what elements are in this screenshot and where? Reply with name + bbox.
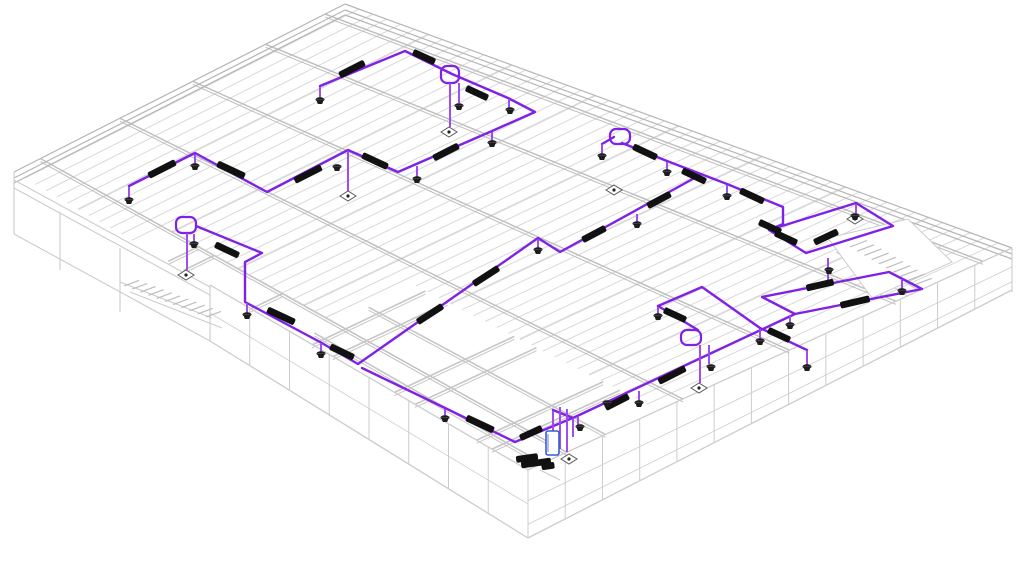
- stair-tread: [132, 284, 147, 290]
- roof-joist: [110, 50, 470, 228]
- fixture-base: [633, 224, 640, 228]
- conduit-fitting[interactable]: [329, 343, 355, 360]
- girder-beam: [120, 118, 683, 399]
- stair-tread: [915, 278, 932, 285]
- fixture-device[interactable]: [802, 364, 811, 371]
- stair-tread: [124, 280, 139, 286]
- fixture-device[interactable]: [454, 103, 463, 110]
- fixture-base: [125, 200, 132, 204]
- stair-tread: [149, 290, 164, 296]
- stair-tread: [206, 311, 221, 317]
- roof-joist-layer: [25, 9, 998, 404]
- roof-joist: [121, 55, 484, 234]
- roof-joist: [78, 35, 428, 210]
- conduit-fitting[interactable]: [416, 303, 445, 325]
- partition-wall: [394, 336, 514, 392]
- fixture-device[interactable]: [124, 197, 133, 204]
- roof-joist: [555, 202, 887, 357]
- fixture-device[interactable]: [412, 176, 421, 183]
- conduit-fitting[interactable]: [663, 307, 688, 323]
- plate-center: [612, 188, 615, 191]
- conduit-fitting[interactable]: [774, 230, 799, 246]
- girder-beam: [266, 47, 896, 304]
- structure-line: [14, 234, 210, 341]
- electrical-panel[interactable]: [546, 431, 559, 455]
- wall-band: [528, 282, 1012, 525]
- fixture-device[interactable]: [755, 338, 764, 345]
- fixture-base: [316, 100, 323, 104]
- fixture-device[interactable]: [533, 247, 542, 254]
- stair-tread: [165, 296, 180, 302]
- fixture-base: [803, 367, 810, 371]
- conduit-fitting[interactable]: [293, 164, 323, 184]
- fixture-layer: [124, 97, 906, 431]
- partition-wall: [394, 339, 514, 395]
- fixture-device[interactable]: [632, 221, 641, 228]
- fixture-device[interactable]: [575, 424, 584, 431]
- ceiling-plate[interactable]: [340, 191, 356, 201]
- fixture-device[interactable]: [785, 322, 794, 329]
- roof-joist: [531, 192, 859, 345]
- plate-center: [346, 194, 349, 197]
- fixture-device[interactable]: [597, 153, 606, 160]
- conduit-fitting[interactable]: [581, 225, 607, 243]
- fixture-device[interactable]: [190, 163, 199, 170]
- fixture-device[interactable]: [662, 169, 671, 176]
- plate-center: [567, 457, 570, 460]
- wall-top-edge: [528, 248, 1012, 470]
- conduit-gooseneck[interactable]: [681, 330, 701, 345]
- stair-tread: [190, 305, 205, 311]
- fixture-base: [506, 110, 513, 114]
- model-viewport[interactable]: [0, 0, 1024, 563]
- stair-tread: [173, 299, 188, 305]
- partition-wall: [369, 307, 606, 434]
- roof-joist: [89, 40, 442, 216]
- fixture-base: [635, 403, 642, 407]
- fixture-base: [723, 196, 730, 200]
- stair-tread: [157, 293, 172, 299]
- stair-tread: [181, 302, 196, 308]
- conduit-fitting[interactable]: [147, 159, 177, 179]
- roof-edge-nw: [14, 10, 345, 178]
- partition-wall: [250, 297, 282, 312]
- fixture-base: [333, 167, 340, 171]
- fixture-base: [707, 367, 714, 371]
- roof-edge-ne: [345, 4, 1012, 248]
- conduit-fitting[interactable]: [432, 143, 460, 162]
- fixture-device[interactable]: [505, 107, 514, 114]
- fixture-base: [455, 106, 462, 110]
- fixture-base: [598, 156, 605, 160]
- fixture-device[interactable]: [440, 415, 449, 422]
- structure-line: [540, 470, 560, 480]
- fixture-base: [191, 166, 198, 170]
- fixture-base: [441, 418, 448, 422]
- fixture-device[interactable]: [315, 97, 324, 104]
- girder-beam: [193, 81, 790, 350]
- stair-tread: [140, 287, 155, 293]
- girder-beam: [193, 84, 790, 353]
- conduit-fitting[interactable]: [767, 327, 792, 343]
- partition-wall: [415, 351, 537, 408]
- partition-wall: [184, 255, 215, 270]
- fixture-base: [534, 250, 541, 254]
- conduit-fitting[interactable]: [739, 187, 765, 204]
- fixture-device[interactable]: [722, 193, 731, 200]
- ceiling-plate[interactable]: [691, 383, 707, 393]
- fixture-device[interactable]: [332, 164, 341, 171]
- wall-bottom-edge: [528, 290, 1012, 538]
- conduit-fitting[interactable]: [806, 279, 835, 292]
- fixture-base: [576, 427, 583, 431]
- fixture-device[interactable]: [706, 364, 715, 371]
- ceiling-plate[interactable]: [606, 185, 622, 195]
- fixture-base: [756, 341, 763, 345]
- partition-wall: [415, 348, 537, 405]
- fixture-base: [663, 172, 670, 176]
- partition-wall: [168, 247, 198, 262]
- partition-wall: [312, 291, 425, 345]
- conduit-fitting[interactable]: [472, 265, 501, 287]
- partition-wall: [168, 250, 198, 265]
- plate-center: [447, 130, 450, 133]
- fixture-device[interactable]: [316, 351, 325, 358]
- roof-joist: [100, 45, 457, 222]
- plate-center: [184, 273, 187, 276]
- 3d-view-canvas[interactable]: [0, 0, 1024, 563]
- roof-joist: [566, 207, 901, 362]
- fixture-base: [317, 354, 324, 358]
- fixture-device[interactable]: [634, 400, 643, 407]
- ceiling-plate[interactable]: [561, 454, 577, 464]
- roof-joist: [543, 197, 873, 351]
- plate-center: [697, 386, 700, 389]
- fixture-device[interactable]: [487, 140, 496, 147]
